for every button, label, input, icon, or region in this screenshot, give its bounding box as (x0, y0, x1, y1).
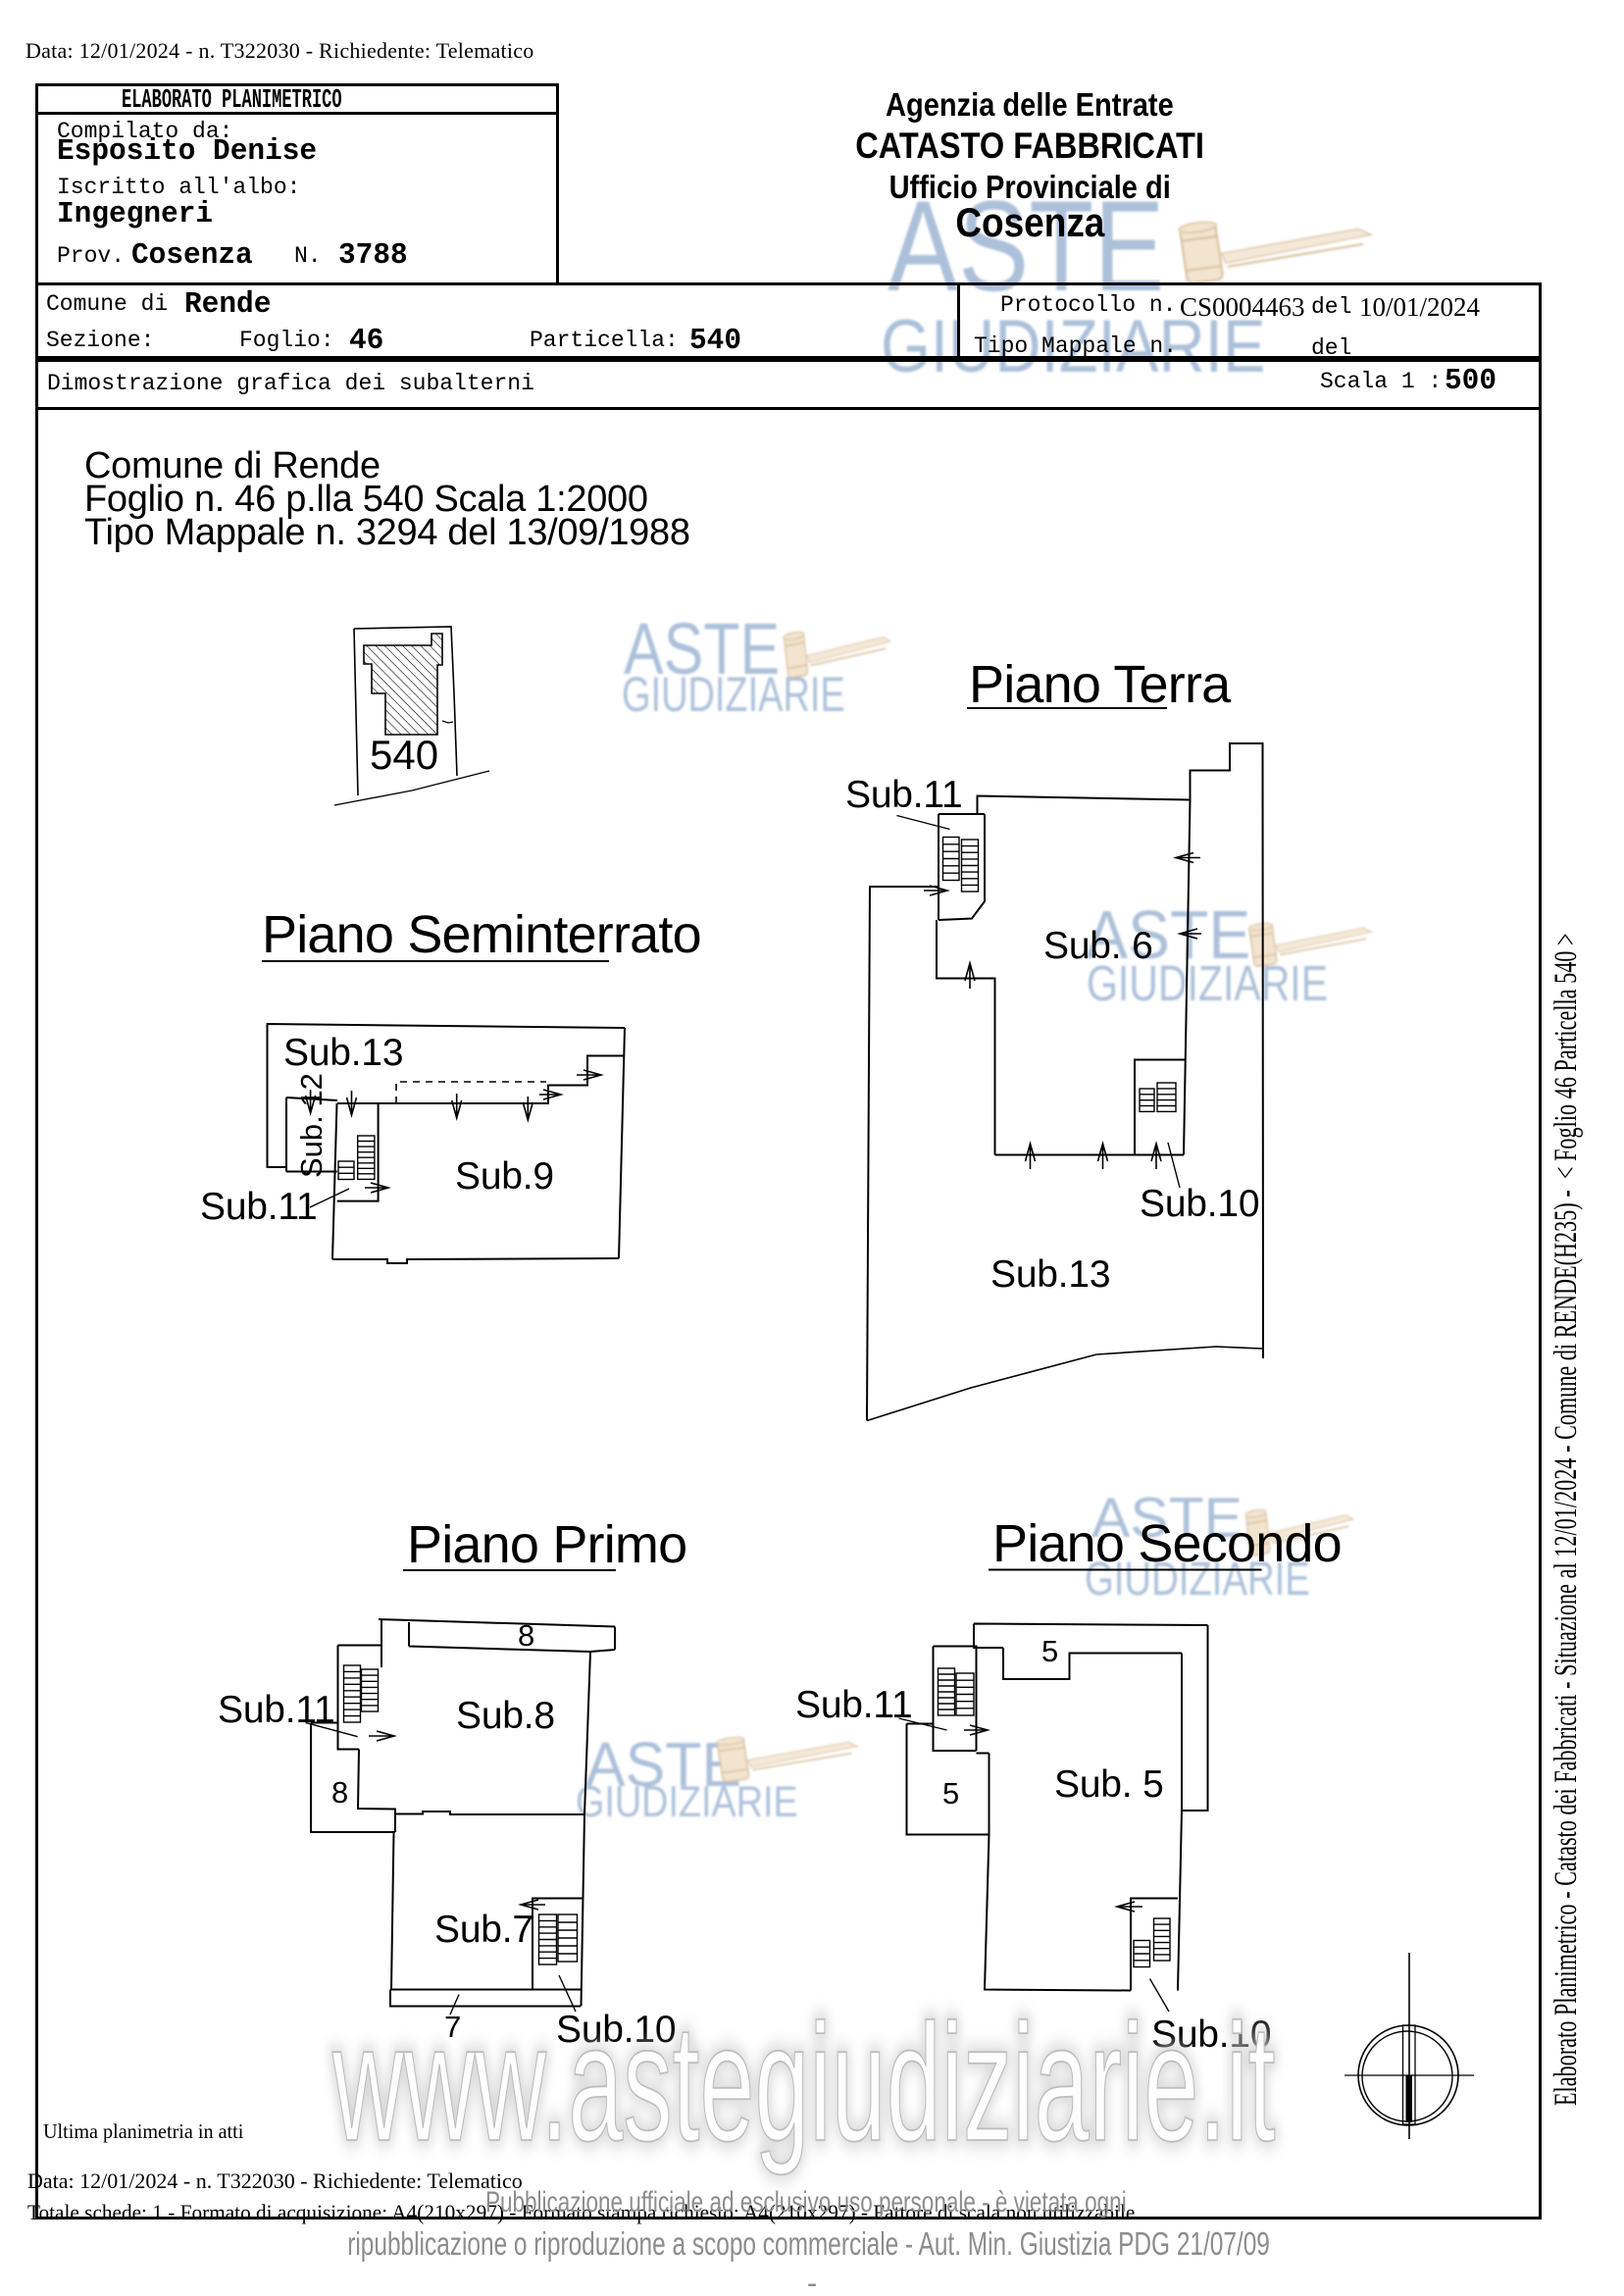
svg-text:www.astegiudiziarie.it: www.astegiudiziarie.it (331, 1990, 1275, 2176)
